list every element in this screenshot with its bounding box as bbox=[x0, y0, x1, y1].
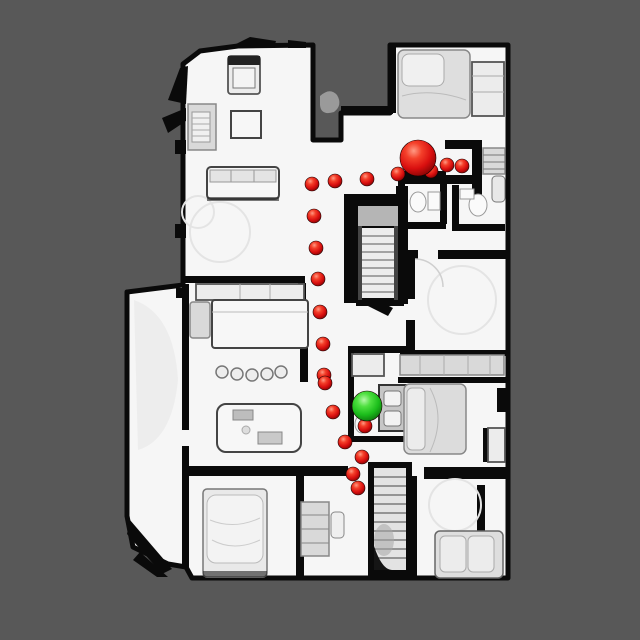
path-point-sphere bbox=[351, 481, 365, 495]
path-point-sphere bbox=[338, 435, 352, 449]
path-point-sphere bbox=[309, 241, 323, 255]
floorplan-scene bbox=[0, 0, 640, 640]
bench-right bbox=[488, 428, 505, 462]
bath-mid-counter bbox=[352, 354, 384, 376]
staircase-lower bbox=[368, 462, 412, 578]
fridge bbox=[190, 302, 210, 338]
path-point-sphere bbox=[311, 272, 325, 286]
path-point-sphere bbox=[355, 450, 369, 464]
path-point-sphere bbox=[328, 174, 342, 188]
path-point-sphere bbox=[326, 405, 340, 419]
door-panel-bottom bbox=[331, 512, 344, 538]
bed-bottom-left bbox=[203, 489, 267, 577]
piano bbox=[188, 104, 216, 150]
staircase-upper bbox=[356, 196, 404, 306]
bed-mid-right bbox=[404, 384, 466, 454]
sofa bbox=[207, 167, 279, 201]
vanity-double-sink bbox=[379, 385, 406, 431]
path-point-sphere bbox=[360, 172, 374, 186]
door-panel-right bbox=[492, 176, 505, 202]
path-point-sphere bbox=[313, 305, 327, 319]
goal-marker bbox=[352, 391, 382, 421]
dresser-band bbox=[400, 355, 504, 375]
path-point-sphere bbox=[455, 159, 469, 173]
agent-position-sphere bbox=[400, 140, 436, 176]
dining-table bbox=[217, 404, 301, 452]
agent-marker bbox=[400, 140, 436, 176]
coffee-table bbox=[231, 111, 261, 138]
path-point-sphere bbox=[346, 467, 360, 481]
path-point-sphere bbox=[316, 337, 330, 351]
scan-viewport[interactable] bbox=[0, 0, 640, 640]
goal-position-sphere bbox=[352, 391, 382, 421]
extension-wall bbox=[182, 284, 189, 568]
kitchen-island bbox=[212, 300, 308, 348]
stair-landing bbox=[358, 206, 398, 226]
couch-bottom-right bbox=[435, 531, 503, 578]
armchair bbox=[228, 56, 260, 94]
path-point-sphere bbox=[440, 158, 454, 172]
closet-bottom-left bbox=[301, 502, 329, 556]
path-point-sphere bbox=[391, 167, 405, 181]
path-point-sphere bbox=[318, 376, 332, 390]
bed-top-right bbox=[398, 50, 470, 118]
path-point-sphere bbox=[305, 177, 319, 191]
kitchen-counter bbox=[196, 284, 304, 300]
path-point-sphere bbox=[307, 209, 321, 223]
